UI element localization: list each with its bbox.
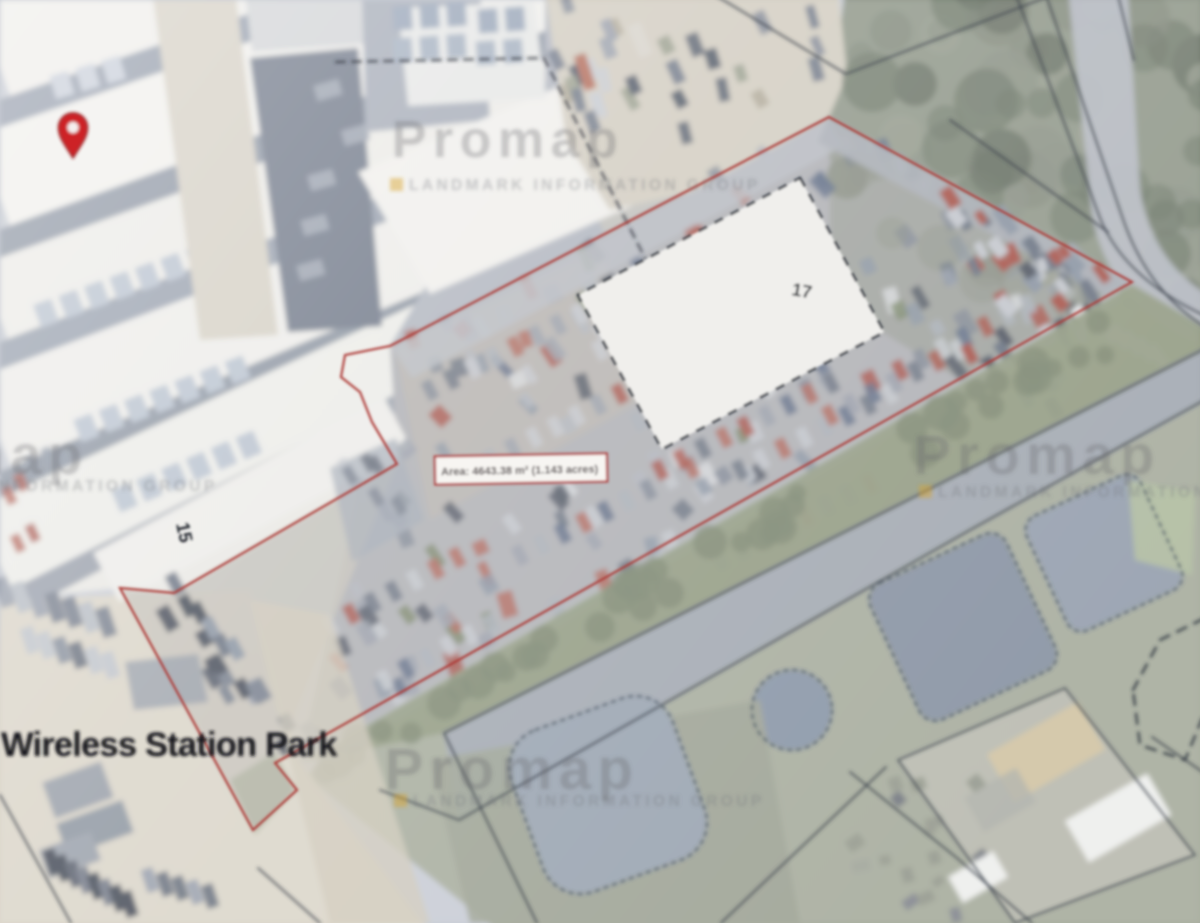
svg-text:LANDMARK INFORMATION GROUP: LANDMARK INFORMATION GROUP xyxy=(413,793,765,810)
svg-text:Promap: Promap xyxy=(0,423,89,486)
svg-text:LANDMARK INFORMATION GROUP: LANDMARK INFORMATION GROUP xyxy=(938,484,1200,501)
svg-text:LANDMARK INFORMATION GROUP: LANDMARK INFORMATION GROUP xyxy=(0,478,218,495)
svg-text:Wireless Station Park: Wireless Station Park xyxy=(1,726,338,764)
svg-text:Promap: Promap xyxy=(392,111,625,169)
svg-text:Promap: Promap xyxy=(913,423,1161,486)
svg-text:LANDMARK INFORMATION GROUP: LANDMARK INFORMATION GROUP xyxy=(409,177,761,194)
svg-text:17: 17 xyxy=(790,279,813,302)
svg-text:15: 15 xyxy=(172,521,196,545)
